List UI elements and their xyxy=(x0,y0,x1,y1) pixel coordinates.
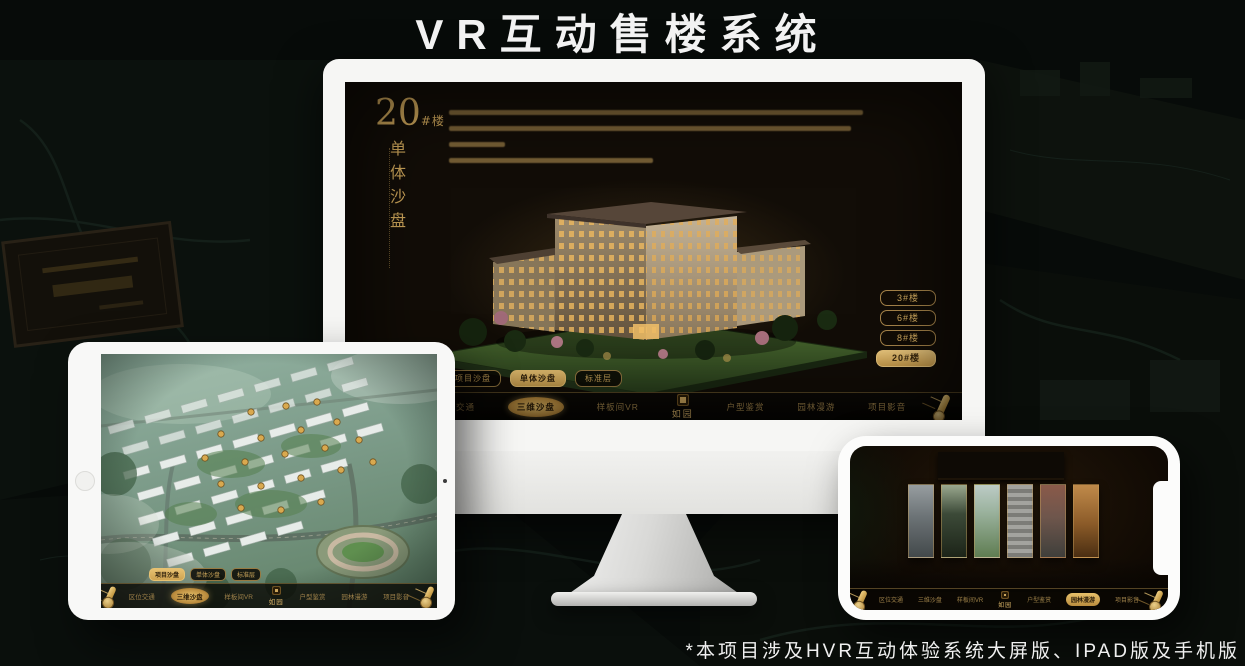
nav-item-project-media[interactable]: 项目影音 xyxy=(868,401,906,413)
tablet-camera-icon xyxy=(443,479,447,483)
ruyuan-seal-icon xyxy=(677,394,689,406)
vr-scene[interactable] xyxy=(908,484,1099,558)
page-title: VR互动售楼系统 xyxy=(0,1,1245,62)
ruyuan-logo: 如园 xyxy=(998,591,1012,609)
nav-item-3d-sandbox[interactable]: 三维沙盘 xyxy=(171,588,209,604)
nav-item-3d-sandbox[interactable]: 三维沙盘 xyxy=(508,397,564,417)
nav-item-floorplan[interactable]: 户型鉴赏 xyxy=(727,401,765,413)
scroll-menu-icon[interactable] xyxy=(854,589,868,610)
sandbox-subtabs: 项目沙盘 单体沙盘 标准层 xyxy=(445,370,622,387)
sub-tab-standard-floor[interactable]: 标准层 xyxy=(575,370,622,387)
scroll-menu-icon[interactable] xyxy=(103,586,117,607)
building-subtitle: 单体沙盘 xyxy=(383,140,407,280)
floor-button-6[interactable]: 6#楼 xyxy=(880,310,936,326)
sub-tab-single-sandbox[interactable]: 单体沙盘 xyxy=(190,568,226,581)
nav-item-floorplan[interactable]: 户型鉴赏 xyxy=(1027,595,1051,604)
nav-item-model-room-vr[interactable]: 样板间VR xyxy=(597,401,639,413)
phone-navbar: 区位交通 三维沙盘 样板间VR 如园 户型鉴赏 园林漫游 项目影音 xyxy=(850,588,1168,610)
nav-item-model-room-vr[interactable]: 样板间VR xyxy=(957,595,983,604)
monitor-stand-base xyxy=(551,592,757,606)
floor-shadow xyxy=(850,558,1168,592)
tablet-sandbox-subtabs: 项目沙盘 单体沙盘 标准层 xyxy=(149,568,261,581)
scroll-menu-icon[interactable] xyxy=(934,393,951,420)
phone-device: 区位交通 三维沙盘 样板间VR 如园 户型鉴赏 园林漫游 项目影音 xyxy=(838,436,1180,620)
tablet-device: 项目沙盘 单体沙盘 标准层 区位交通 三维沙盘 样板间VR 如园 户型鉴赏 园林… xyxy=(68,342,455,620)
nav-item-model-room-vr[interactable]: 样板间VR xyxy=(224,591,253,601)
tablet-navbar: 区位交通 三维沙盘 样板间VR 如园 户型鉴赏 园林漫游 项目影音 xyxy=(101,583,437,608)
nav-item-garden-tour[interactable]: 园林漫游 xyxy=(1066,593,1100,606)
sub-tab-project-sandbox[interactable]: 项目沙盘 xyxy=(149,568,185,581)
floor-button-8[interactable]: 8#楼 xyxy=(880,330,936,346)
footnote: *本项目涉及HVR互动体验系统大屏版、IPAD版及手机版 xyxy=(686,636,1240,663)
nav-item-project-media[interactable]: 项目影音 xyxy=(383,591,409,601)
building-3d-viewport[interactable] xyxy=(407,144,885,396)
ruyuan-seal-icon xyxy=(1001,591,1009,599)
scroll-menu-icon[interactable] xyxy=(421,586,435,607)
nav-item-location-traffic[interactable]: 区位交通 xyxy=(879,595,903,604)
ruyuan-seal-icon xyxy=(272,586,281,595)
vertical-divider xyxy=(389,148,390,268)
gate-roof xyxy=(938,452,1064,480)
ruyuan-logo: 如园 xyxy=(269,586,284,606)
floor-button-3[interactable]: 3#楼 xyxy=(880,290,936,306)
building-number: 20#楼 xyxy=(375,96,445,132)
sub-tab-single-sandbox[interactable]: 单体沙盘 xyxy=(510,370,566,387)
nav-item-location-traffic[interactable]: 区位交通 xyxy=(129,591,155,601)
scene-panel[interactable] xyxy=(908,484,934,558)
phone-notch xyxy=(1153,481,1168,575)
scene-panel[interactable] xyxy=(941,484,967,558)
tablet-home-button[interactable] xyxy=(75,471,95,491)
nav-item-garden-tour[interactable]: 园林漫游 xyxy=(341,591,367,601)
scroll-menu-icon[interactable] xyxy=(1150,589,1164,610)
nav-item-garden-tour[interactable]: 园林漫游 xyxy=(797,401,835,413)
scene-panel[interactable] xyxy=(974,484,1000,558)
floor-button-20[interactable]: 20#楼 xyxy=(876,350,936,367)
monitor-stand-neck xyxy=(554,514,754,600)
phone-screen: 区位交通 三维沙盘 样板间VR 如园 户型鉴赏 园林漫游 项目影音 xyxy=(850,446,1168,610)
floor-button-group: 3#楼 6#楼 8#楼 20#楼 xyxy=(876,290,936,367)
scene-panel[interactable] xyxy=(1040,484,1066,558)
tablet-screen: 项目沙盘 单体沙盘 标准层 区位交通 三维沙盘 样板间VR 如园 户型鉴赏 园林… xyxy=(101,354,437,608)
scene-panel[interactable] xyxy=(1073,484,1099,558)
sub-tab-standard-floor[interactable]: 标准层 xyxy=(231,568,261,581)
ruyuan-logo: 如园 xyxy=(672,394,694,420)
scene-panel[interactable] xyxy=(1007,484,1033,558)
nav-item-floorplan[interactable]: 户型鉴赏 xyxy=(300,591,326,601)
nav-item-3d-sandbox[interactable]: 三维沙盘 xyxy=(918,595,942,604)
